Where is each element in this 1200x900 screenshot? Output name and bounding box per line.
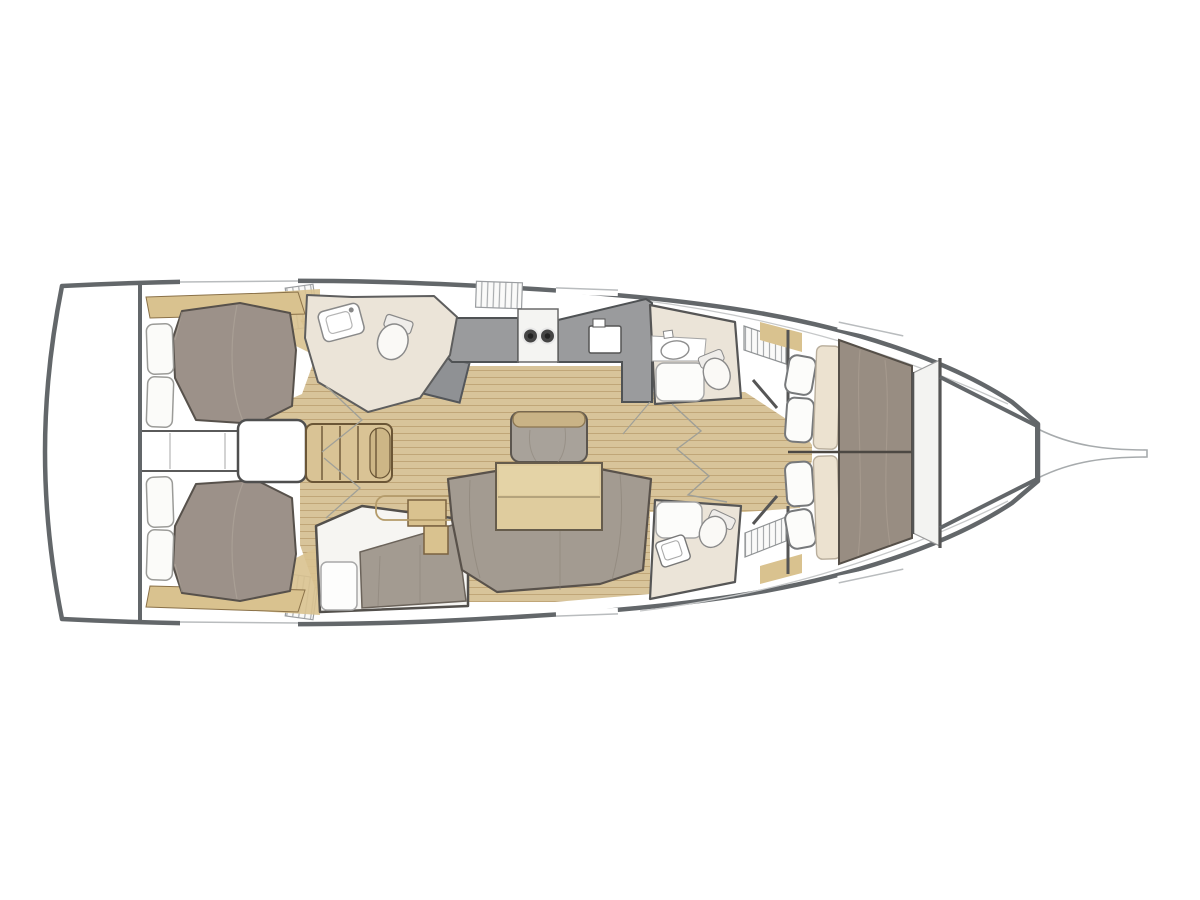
floor-plan-svg <box>0 0 1200 900</box>
pillow <box>146 530 174 581</box>
saloon-settee <box>511 412 587 462</box>
pillow <box>146 377 174 428</box>
step-block <box>424 526 448 554</box>
engine-box <box>238 420 306 482</box>
pillow <box>813 456 841 560</box>
yacht-floor-plan <box>0 0 1200 900</box>
berth-pad <box>321 562 357 610</box>
aft-cabin-starboard <box>146 477 305 612</box>
pillow <box>813 346 841 450</box>
bow-shelf <box>913 360 940 546</box>
step-block <box>408 500 446 526</box>
shower-tray <box>656 363 704 401</box>
pillow <box>146 477 174 528</box>
shower-tray <box>656 502 702 538</box>
aft-cabin-port <box>146 292 305 427</box>
companionway-steps <box>306 424 392 482</box>
pillow <box>146 324 174 375</box>
stove <box>518 309 558 362</box>
bowsprit <box>1038 429 1147 478</box>
saloon-table <box>496 463 602 530</box>
companionway-hatch <box>476 281 523 309</box>
